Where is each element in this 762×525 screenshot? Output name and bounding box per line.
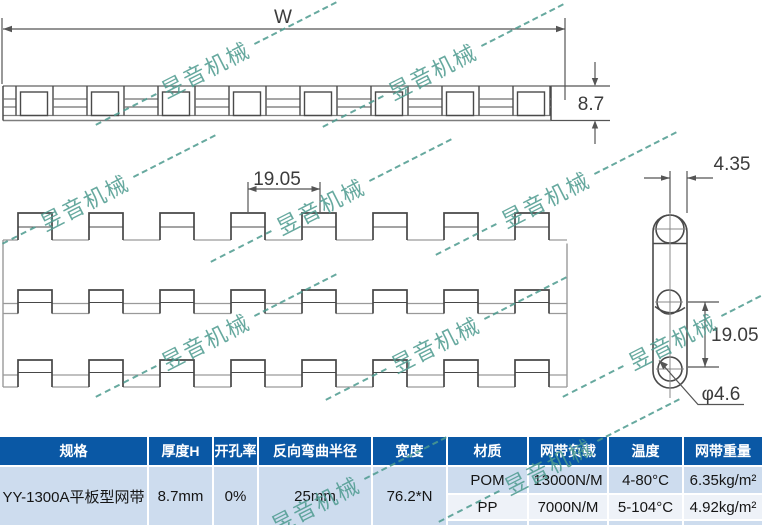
header-spec: 规格 [0, 437, 147, 465]
header-width: 宽度 [373, 437, 446, 465]
header-load: 网带负载 [529, 437, 607, 465]
technical-drawing: W 8.7 19.05 4.35 19.05 φ4.6 [0, 0, 762, 437]
cell-temperature-pom: 4-80°C [609, 467, 682, 493]
header-thickness: 厚度H [149, 437, 212, 465]
dim-pitch-label: 19.05 [253, 169, 301, 190]
cell-weight-pp: 4.92kg/m² [684, 495, 762, 519]
table-bottom-strip [684, 521, 762, 525]
arrow [687, 175, 696, 181]
header-bend-radius: 反向弯曲半径 [259, 437, 371, 465]
arrow [592, 121, 598, 129]
cell-width: 76.2*N [373, 467, 446, 525]
page: W 8.7 19.05 4.35 19.05 φ4.6 规格 厚度H 开孔率 反… [0, 0, 762, 525]
dim-plate-width-label: 4.35 [714, 154, 751, 175]
arrow [702, 358, 708, 367]
cell-thickness: 8.7mm [149, 467, 212, 525]
cell-weight-pom: 6.35kg/m² [684, 467, 762, 493]
table-bottom-strip [609, 521, 682, 525]
dim-hole-pitch-label: 19.05 [711, 325, 759, 346]
dim-thickness-label: 8.7 [578, 94, 604, 115]
arrow [312, 186, 321, 192]
belt-side-profile [3, 86, 551, 121]
cell-temperature-pp: 5-104°C [609, 495, 682, 519]
cell-bend-radius: 25mm [259, 467, 371, 525]
header-open-rate: 开孔率 [214, 437, 257, 465]
belt-plan-view [3, 213, 567, 387]
dim-hole-diameter-label: φ4.6 [702, 384, 741, 405]
table-bottom-strip [529, 521, 607, 525]
cell-load-pp: 7000N/M [529, 495, 607, 519]
cell-material-pp: PP [448, 495, 527, 519]
cell-spec: YY-1300A平板型网带 [0, 467, 147, 525]
spec-table: 规格 厚度H 开孔率 反向弯曲半径 宽度 材质 网带负载 温度 网带重量 YY-… [0, 437, 762, 525]
dim-overall-width-label: W [274, 7, 292, 28]
header-temperature: 温度 [609, 437, 682, 465]
arrow [702, 302, 708, 311]
table-bottom-strip [448, 521, 527, 525]
arrow [661, 175, 670, 181]
center-lines [654, 205, 686, 398]
cell-material-pom: POM [448, 467, 527, 493]
header-weight: 网带重量 [684, 437, 762, 465]
cell-open-rate: 0% [214, 467, 257, 525]
header-material: 材质 [448, 437, 527, 465]
dimensions [2, 18, 744, 405]
arrow [592, 78, 598, 86]
cell-load-pom: 13000N/M [529, 467, 607, 493]
belt-link-side-view [653, 205, 687, 398]
arrow [556, 26, 565, 32]
arrow [3, 26, 12, 32]
